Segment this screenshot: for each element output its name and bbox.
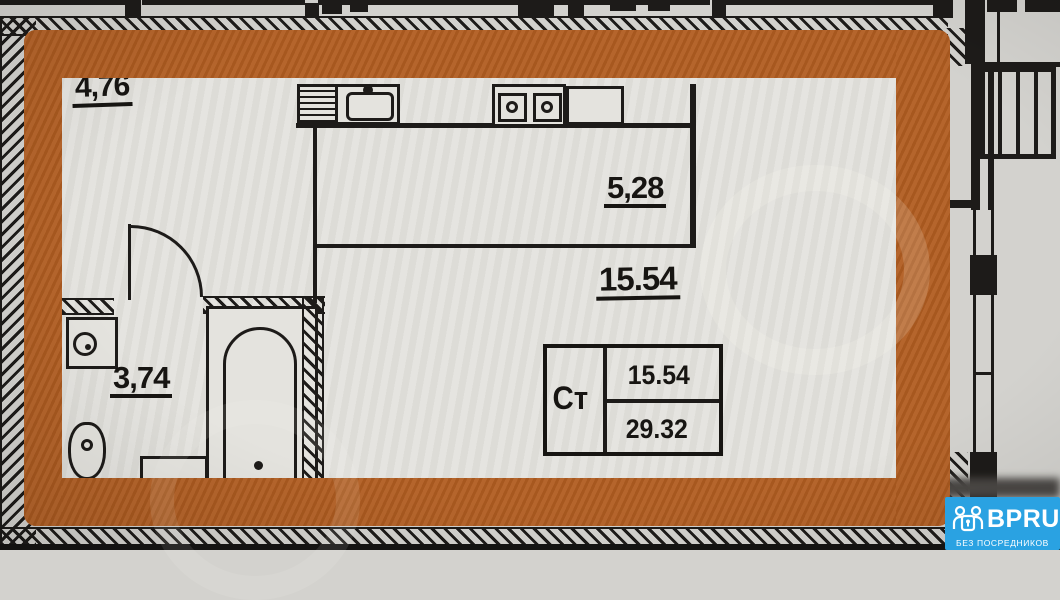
top-wall-segment bbox=[580, 0, 710, 5]
highlight-band-left bbox=[24, 30, 62, 526]
top-wall-segment bbox=[0, 0, 128, 5]
highlight-band-top bbox=[24, 30, 950, 78]
photo-shadow bbox=[940, 478, 1060, 498]
right-wall-mid bbox=[988, 62, 994, 210]
highlight-frame bbox=[24, 30, 950, 526]
people-lock-icon bbox=[951, 505, 985, 533]
window-line bbox=[973, 208, 976, 480]
shaft-bar bbox=[998, 72, 1002, 154]
photo-bottom-edge bbox=[0, 544, 1060, 550]
shaft-bar bbox=[1016, 72, 1020, 154]
top-wall-segment bbox=[142, 0, 305, 5]
fixture-fragment bbox=[350, 2, 368, 12]
right-wall-line bbox=[997, 0, 1000, 64]
window-cap bbox=[970, 255, 997, 295]
window-mid-tick bbox=[973, 372, 994, 375]
fixture-fragment bbox=[610, 2, 636, 11]
watermark-brand: BPRU bbox=[987, 505, 1060, 534]
watermark-tagline: БЕЗ ПОСРЕДНИКОВ bbox=[945, 538, 1060, 548]
wall-junction bbox=[950, 200, 972, 208]
window-line bbox=[991, 208, 994, 480]
site-watermark: BPRU БЕЗ ПОСРЕДНИКОВ bbox=[945, 497, 1060, 550]
highlight-band-right bbox=[896, 30, 950, 526]
fixture-fragment bbox=[322, 2, 342, 14]
fixture-fragment bbox=[518, 0, 554, 16]
right-wall-mid bbox=[971, 62, 980, 210]
right-wall-top bbox=[965, 0, 985, 64]
floorplan-photo: { "plan": { "labels": { "entry_area": "4… bbox=[0, 0, 1060, 550]
highlight-band-bottom bbox=[24, 478, 950, 526]
fixture-fragment bbox=[648, 2, 670, 11]
top-wall-segment bbox=[722, 0, 948, 5]
shaft-bar bbox=[1034, 72, 1038, 154]
top-wall-segment bbox=[1025, 0, 1060, 12]
top-wall-segment bbox=[987, 0, 1017, 12]
